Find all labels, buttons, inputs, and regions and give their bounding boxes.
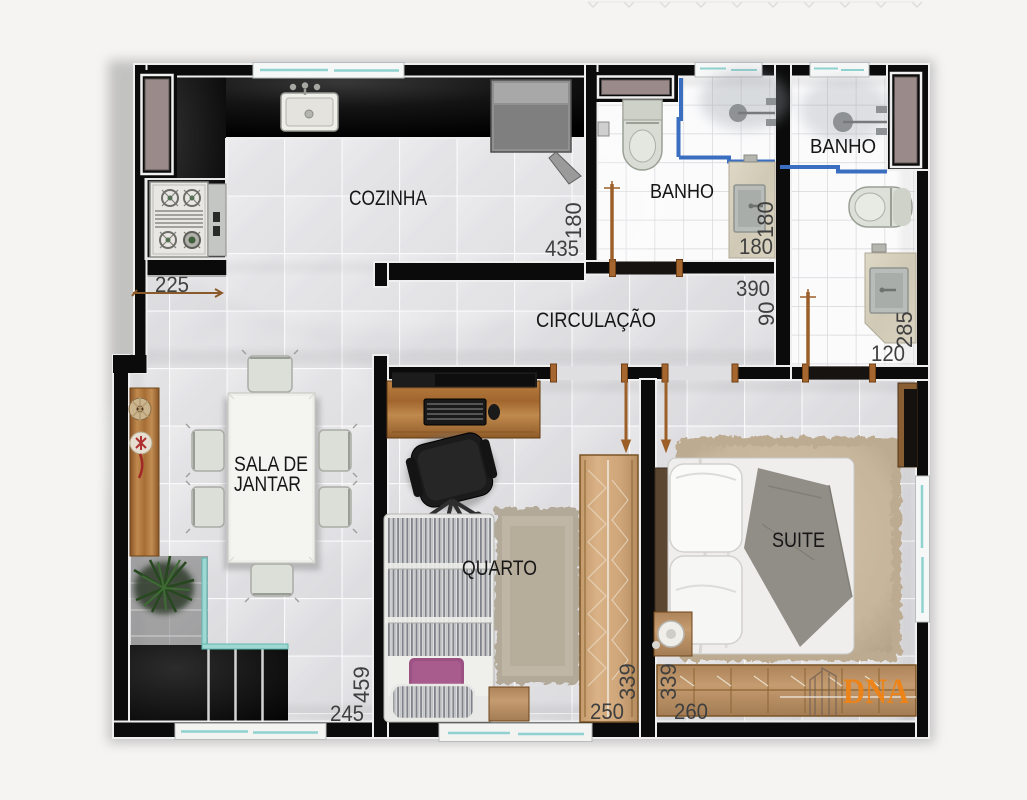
svg-text:180: 180	[753, 201, 778, 238]
svg-text:339: 339	[656, 663, 681, 700]
svg-text:90: 90	[754, 302, 779, 326]
svg-text:180: 180	[561, 202, 586, 239]
svg-text:339: 339	[615, 663, 640, 700]
svg-text:QUARTO: QUARTO	[462, 557, 537, 580]
svg-text:245: 245	[330, 701, 364, 726]
svg-text:COZINHA: COZINHA	[349, 187, 427, 210]
svg-text:390: 390	[736, 276, 770, 301]
svg-text:260: 260	[674, 699, 708, 724]
svg-text:250: 250	[590, 699, 624, 724]
svg-text:CIRCULAÇÃO: CIRCULAÇÃO	[536, 308, 656, 332]
svg-text:225: 225	[155, 272, 189, 297]
svg-text:BANHO: BANHO	[810, 136, 876, 158]
svg-text:285: 285	[892, 311, 917, 348]
svg-text:459: 459	[349, 666, 374, 703]
svg-text:BANHO: BANHO	[650, 181, 714, 203]
svg-text:JANTAR: JANTAR	[234, 473, 301, 496]
svg-text:SUITE: SUITE	[772, 529, 825, 552]
svg-text:DNA: DNA	[843, 671, 909, 711]
